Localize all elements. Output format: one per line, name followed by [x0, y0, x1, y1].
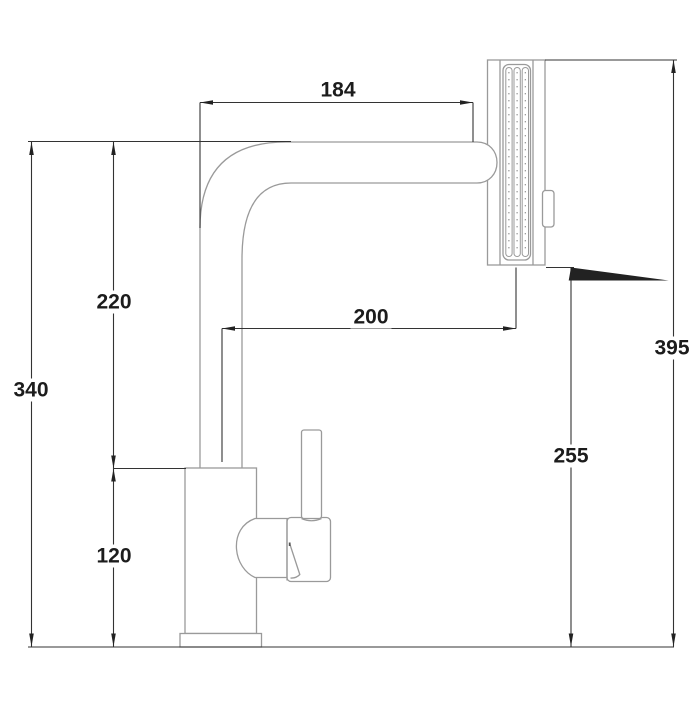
dim-label-spout-reach-top: 184: [317, 79, 358, 102]
handle-pivot-mark: [289, 543, 291, 547]
dim-label-spout-height: 220: [93, 291, 134, 314]
spout-outline: [200, 142, 497, 468]
arrow-down: [569, 634, 574, 647]
arrow-down: [29, 634, 34, 647]
handle-lever: [302, 430, 322, 519]
dim-label-height-right: 395: [651, 337, 692, 360]
base-flange: [180, 634, 262, 648]
dim-label-body-height: 120: [93, 545, 134, 568]
arrow-right: [503, 326, 516, 331]
handle-base-bulge: [236, 519, 288, 578]
arrow-up: [111, 469, 116, 482]
arrow-right: [460, 100, 473, 105]
faucet-outline-group: [180, 60, 554, 647]
arrow-down: [111, 634, 116, 647]
arrow-up: [569, 268, 669, 281]
arrow-down: [111, 456, 116, 469]
arrow-up: [671, 60, 676, 73]
spray-head-button: [543, 191, 555, 228]
handle-cartridge: [287, 518, 331, 582]
arrow-up: [29, 142, 34, 155]
faucet-dimension-drawing: 184 220 200 340 395 255 120: [0, 0, 700, 707]
dim-label-spout-reach-face: 200: [350, 306, 391, 329]
dim-label-head-clearance: 255: [550, 445, 591, 468]
arrow-down: [671, 634, 676, 647]
arrow-left: [200, 100, 213, 105]
arrow-up: [111, 142, 116, 155]
dim-label-height-left: 340: [10, 379, 51, 402]
drawing-canvas: [0, 0, 700, 707]
